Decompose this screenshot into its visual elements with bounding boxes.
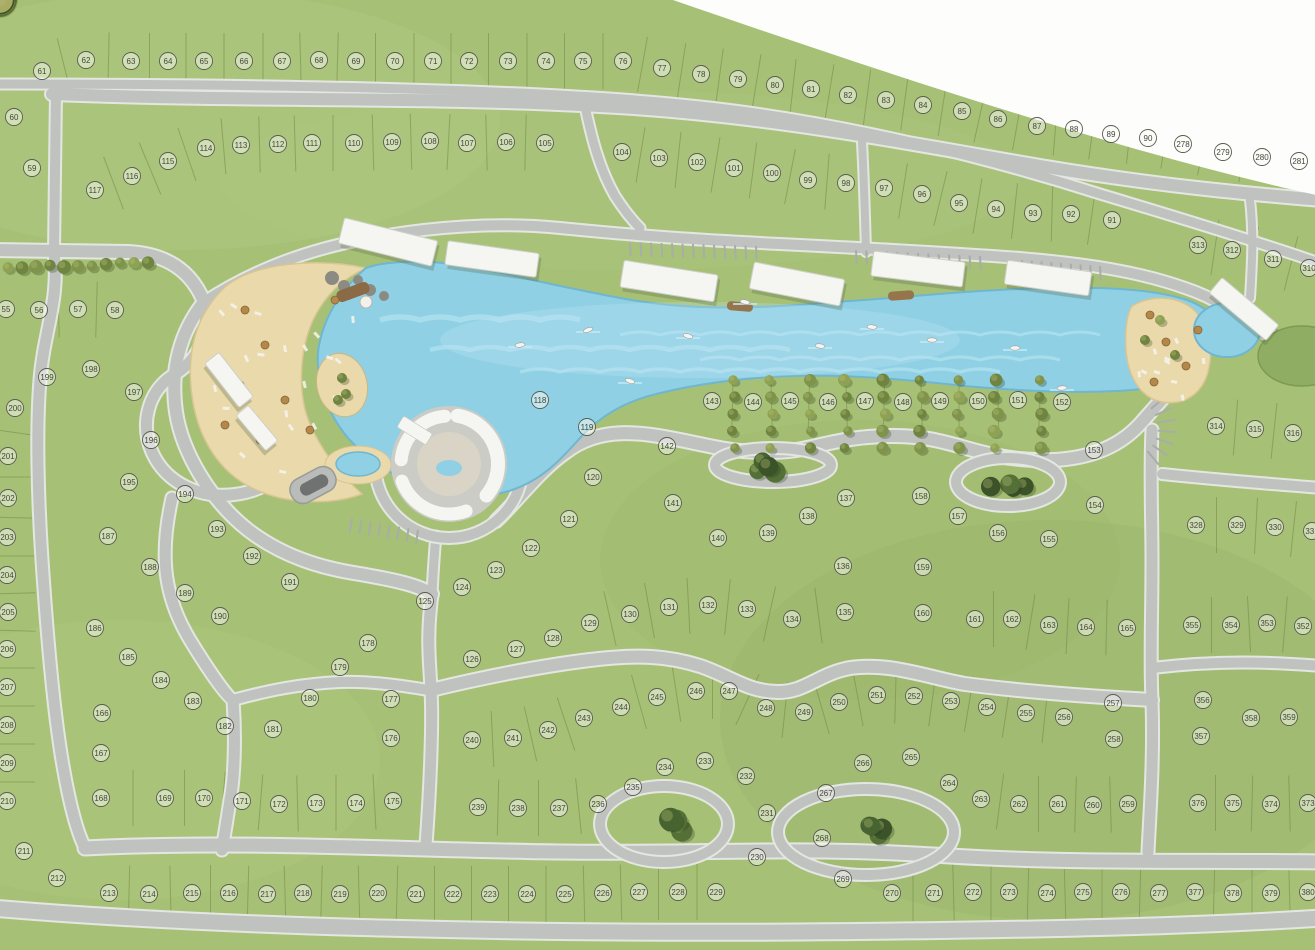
lot-marker-280: 280 (1254, 149, 1271, 166)
lot-marker-59: 59 (24, 160, 41, 177)
lot-marker-158: 158 (913, 488, 930, 505)
lot-marker-359: 359 (1281, 709, 1298, 726)
svg-text:235: 235 (626, 783, 640, 792)
lot-marker-95: 95 (951, 195, 968, 212)
svg-text:157: 157 (951, 512, 965, 521)
lot-marker-209: 209 (0, 755, 16, 772)
lot-marker-93: 93 (1025, 205, 1042, 222)
lot-marker-203: 203 (0, 529, 16, 546)
lot-marker-205: 205 (0, 604, 17, 621)
svg-text:378: 378 (1226, 889, 1240, 898)
svg-text:161: 161 (968, 615, 982, 624)
svg-text:60: 60 (10, 113, 19, 122)
lot-marker-69: 69 (348, 53, 365, 70)
lot-marker-60: 60 (6, 109, 23, 126)
lot-marker-234: 234 (657, 759, 674, 776)
lot-marker-275: 275 (1075, 884, 1092, 901)
svg-text:201: 201 (1, 452, 15, 461)
lot-marker-197: 197 (126, 384, 143, 401)
svg-text:171: 171 (235, 797, 249, 806)
lot-marker-252: 252 (906, 688, 923, 705)
svg-text:173: 173 (309, 799, 323, 808)
svg-text:240: 240 (465, 736, 479, 745)
svg-text:202: 202 (1, 494, 15, 503)
lot-marker-236: 236 (590, 796, 607, 813)
lot-marker-235: 235 (625, 779, 642, 796)
lot-marker-71: 71 (425, 53, 442, 70)
svg-text:153: 153 (1087, 446, 1101, 455)
svg-text:193: 193 (210, 525, 224, 534)
svg-text:195: 195 (122, 478, 136, 487)
svg-text:126: 126 (465, 655, 479, 664)
lot-marker-123: 123 (488, 562, 505, 579)
svg-text:71: 71 (429, 57, 438, 66)
lot-marker-65: 65 (196, 53, 213, 70)
svg-text:56: 56 (35, 306, 44, 315)
lot-marker-242: 242 (540, 722, 557, 739)
lot-marker-129: 129 (582, 615, 599, 632)
svg-text:220: 220 (371, 889, 385, 898)
svg-text:258: 258 (1107, 735, 1121, 744)
svg-text:273: 273 (1002, 888, 1016, 897)
svg-text:104: 104 (615, 148, 629, 157)
lot-marker-174: 174 (348, 795, 365, 812)
lot-marker-204: 204 (0, 567, 16, 584)
svg-text:243: 243 (577, 714, 591, 723)
lot-marker-178: 178 (360, 635, 377, 652)
svg-text:245: 245 (650, 693, 664, 702)
svg-text:170: 170 (197, 794, 211, 803)
lot-marker-80: 80 (767, 77, 784, 94)
svg-text:281: 281 (1292, 157, 1306, 166)
lot-marker-104: 104 (614, 144, 631, 161)
lot-marker-110: 110 (346, 135, 363, 152)
svg-text:87: 87 (1033, 122, 1042, 131)
lot-marker-64: 64 (160, 53, 177, 70)
svg-text:123: 123 (489, 566, 503, 575)
svg-text:229: 229 (709, 888, 723, 897)
svg-text:190: 190 (213, 612, 227, 621)
lot-marker-100: 100 (764, 165, 781, 182)
lot-marker-135: 135 (837, 604, 854, 621)
lot-marker-194: 194 (177, 486, 194, 503)
lot-marker-357: 357 (1193, 728, 1210, 745)
svg-text:223: 223 (483, 890, 497, 899)
svg-text:184: 184 (154, 676, 168, 685)
lot-marker-263: 263 (973, 791, 990, 808)
svg-text:269: 269 (836, 875, 850, 884)
lot-marker-180: 180 (302, 690, 319, 707)
svg-text:99: 99 (804, 176, 813, 185)
lot-marker-92: 92 (1063, 206, 1080, 223)
lot-marker-352: 352 (1295, 618, 1312, 635)
svg-text:329: 329 (1230, 521, 1244, 530)
lot-marker-254: 254 (979, 699, 996, 716)
lot-marker-105: 105 (537, 135, 554, 152)
lot-marker-75: 75 (575, 53, 592, 70)
lot-marker-279: 279 (1215, 144, 1232, 161)
svg-text:211: 211 (18, 847, 31, 856)
svg-text:102: 102 (690, 158, 704, 167)
svg-text:63: 63 (127, 57, 136, 66)
lot-marker-134: 134 (784, 611, 801, 628)
svg-text:89: 89 (1107, 130, 1116, 139)
svg-text:216: 216 (222, 889, 236, 898)
lot-marker-176: 176 (383, 730, 400, 747)
lot-marker-278: 278 (1175, 136, 1192, 153)
svg-text:230: 230 (750, 853, 764, 862)
lot-marker-143: 143 (704, 393, 721, 410)
lot-marker-148: 148 (895, 394, 912, 411)
svg-text:88: 88 (1070, 125, 1079, 134)
svg-text:115: 115 (162, 157, 175, 166)
svg-text:121: 121 (562, 515, 576, 524)
lot-marker-239: 239 (470, 799, 487, 816)
svg-text:180: 180 (303, 694, 317, 703)
lot-marker-264: 264 (941, 775, 958, 792)
svg-text:277: 277 (1152, 889, 1166, 898)
svg-text:183: 183 (186, 697, 200, 706)
lot-marker-121: 121 (561, 511, 578, 528)
lot-marker-237: 237 (551, 800, 568, 817)
svg-text:178: 178 (361, 639, 375, 648)
svg-text:249: 249 (797, 708, 811, 717)
svg-text:144: 144 (746, 398, 760, 407)
svg-text:187: 187 (101, 532, 115, 541)
lot-marker-152: 152 (1054, 394, 1071, 411)
svg-text:197: 197 (127, 388, 141, 397)
lot-marker-86: 86 (990, 111, 1007, 128)
svg-text:262: 262 (1012, 800, 1026, 809)
lot-marker-210: 210 (0, 793, 16, 810)
svg-text:189: 189 (178, 589, 192, 598)
lot-marker-186: 186 (87, 620, 104, 637)
svg-text:65: 65 (200, 57, 209, 66)
lot-marker-268: 268 (814, 830, 831, 847)
svg-text:188: 188 (143, 563, 157, 572)
lot-marker-172: 172 (271, 796, 288, 813)
lot-marker-136: 136 (835, 558, 852, 575)
svg-text:271: 271 (927, 889, 941, 898)
svg-text:375: 375 (1226, 799, 1240, 808)
svg-text:156: 156 (991, 529, 1005, 538)
lot-marker-247: 247 (721, 683, 738, 700)
lot-marker-73: 73 (500, 53, 517, 70)
lot-marker-379: 379 (1263, 885, 1280, 902)
lot-marker-167: 167 (93, 745, 110, 762)
lot-marker-155: 155 (1041, 531, 1058, 548)
svg-text:247: 247 (722, 687, 736, 696)
lot-marker-81: 81 (803, 81, 820, 98)
svg-text:353: 353 (1260, 619, 1274, 628)
svg-text:265: 265 (904, 753, 918, 762)
lot-marker-156: 156 (990, 525, 1007, 542)
lot-marker-260: 260 (1085, 797, 1102, 814)
svg-text:236: 236 (591, 800, 605, 809)
lot-marker-119: 119 (579, 419, 596, 436)
svg-text:241: 241 (506, 734, 520, 743)
lot-marker-207: 207 (0, 679, 16, 696)
svg-text:233: 233 (698, 757, 712, 766)
lot-marker-145: 145 (782, 393, 799, 410)
svg-text:185: 185 (121, 653, 135, 662)
svg-text:112: 112 (272, 140, 285, 149)
lot-marker-274: 274 (1039, 885, 1056, 902)
lot-marker-221: 221 (408, 886, 425, 903)
lot-marker-358: 358 (1243, 710, 1260, 727)
lot-marker-144: 144 (745, 394, 762, 411)
svg-text:100: 100 (765, 169, 779, 178)
lot-marker-76: 76 (615, 53, 632, 70)
svg-text:140: 140 (711, 534, 725, 543)
svg-text:207: 207 (0, 683, 14, 692)
lot-marker-58: 58 (107, 302, 124, 319)
lot-marker-101: 101 (726, 160, 743, 177)
svg-text:67: 67 (278, 57, 287, 66)
lot-marker-179: 179 (332, 659, 349, 676)
svg-text:118: 118 (534, 396, 547, 405)
svg-text:252: 252 (907, 692, 921, 701)
svg-text:274: 274 (1040, 889, 1054, 898)
svg-text:234: 234 (658, 763, 672, 772)
svg-text:76: 76 (619, 57, 628, 66)
svg-text:226: 226 (596, 889, 610, 898)
lot-marker-188: 188 (142, 559, 159, 576)
svg-text:96: 96 (918, 190, 927, 199)
svg-text:313: 313 (1191, 241, 1205, 250)
lot-marker-227: 227 (631, 884, 648, 901)
lot-marker-232: 232 (738, 768, 755, 785)
lot-marker-187: 187 (100, 528, 117, 545)
lot-marker-130: 130 (622, 606, 639, 623)
lot-marker-222: 222 (445, 886, 462, 903)
lot-marker-270: 270 (884, 885, 901, 902)
masterplan-map: 5556575859606162636465666768697071727374… (0, 0, 1315, 950)
svg-text:228: 228 (671, 888, 685, 897)
svg-text:90: 90 (1144, 134, 1153, 143)
lot-marker-256: 256 (1056, 709, 1073, 726)
lot-marker-213: 213 (101, 885, 118, 902)
lot-marker-233: 233 (697, 753, 714, 770)
lot-marker-315: 315 (1247, 421, 1264, 438)
lot-marker-78: 78 (693, 66, 710, 83)
lot-marker-198: 198 (83, 361, 100, 378)
svg-text:272: 272 (966, 888, 980, 897)
lot-marker-181: 181 (265, 721, 282, 738)
svg-text:179: 179 (333, 663, 347, 672)
lot-marker-111: 111 (304, 135, 321, 152)
svg-text:212: 212 (50, 874, 64, 883)
svg-text:209: 209 (0, 759, 14, 768)
svg-text:93: 93 (1029, 209, 1038, 218)
lot-marker-261: 261 (1050, 796, 1067, 813)
svg-text:169: 169 (158, 794, 172, 803)
svg-text:224: 224 (520, 890, 534, 899)
lot-marker-250: 250 (831, 694, 848, 711)
svg-text:72: 72 (465, 57, 474, 66)
svg-text:254: 254 (980, 703, 994, 712)
lot-marker-116: 116 (124, 168, 141, 185)
lot-marker-267: 267 (818, 785, 835, 802)
masterplan-canvas: 5556575859606162636465666768697071727374… (0, 0, 1315, 950)
svg-text:256: 256 (1057, 713, 1071, 722)
svg-text:279: 279 (1216, 148, 1230, 157)
svg-text:199: 199 (40, 373, 54, 382)
lot-marker-67: 67 (274, 53, 291, 70)
svg-text:134: 134 (785, 615, 799, 624)
lot-marker-249: 249 (796, 704, 813, 721)
svg-text:168: 168 (94, 794, 108, 803)
lot-marker-272: 272 (965, 884, 982, 901)
svg-text:251: 251 (870, 691, 884, 700)
svg-text:312: 312 (1225, 246, 1239, 255)
lot-marker-219: 219 (332, 886, 349, 903)
svg-text:176: 176 (384, 734, 398, 743)
lot-marker-185: 185 (120, 649, 137, 666)
lot-marker-353: 353 (1259, 615, 1276, 632)
svg-text:150: 150 (971, 397, 985, 406)
lot-marker-72: 72 (461, 53, 478, 70)
svg-text:239: 239 (471, 803, 485, 812)
svg-text:357: 357 (1194, 732, 1208, 741)
svg-text:111: 111 (306, 139, 319, 148)
lot-marker-124: 124 (454, 579, 471, 596)
lot-marker-354: 354 (1223, 617, 1240, 634)
svg-text:139: 139 (761, 529, 775, 538)
svg-text:135: 135 (838, 608, 852, 617)
lot-marker-166: 166 (94, 705, 111, 722)
lot-marker-89: 89 (1103, 126, 1120, 143)
svg-text:78: 78 (697, 70, 706, 79)
lot-marker-251: 251 (869, 687, 886, 704)
svg-text:227: 227 (632, 888, 646, 897)
lot-marker-265: 265 (903, 749, 920, 766)
lot-marker-217: 217 (259, 886, 276, 903)
svg-text:214: 214 (142, 890, 156, 899)
svg-text:250: 250 (832, 698, 846, 707)
svg-text:142: 142 (660, 442, 674, 451)
svg-text:107: 107 (460, 139, 474, 148)
lot-marker-206: 206 (0, 641, 16, 658)
svg-text:231: 231 (760, 809, 774, 818)
svg-text:328: 328 (1189, 521, 1203, 530)
lot-marker-173: 173 (308, 795, 325, 812)
svg-text:191: 191 (283, 578, 297, 587)
svg-text:263: 263 (974, 795, 988, 804)
svg-text:101: 101 (727, 164, 741, 173)
svg-text:128: 128 (546, 634, 560, 643)
lot-marker-127: 127 (508, 641, 525, 658)
svg-text:152: 152 (1055, 398, 1069, 407)
lot-marker-375: 375 (1225, 795, 1242, 812)
svg-text:113: 113 (235, 141, 248, 150)
lot-marker-373: 373 (1300, 795, 1315, 812)
lot-marker-374: 374 (1263, 796, 1280, 813)
svg-text:84: 84 (919, 101, 928, 110)
lot-marker-266: 266 (855, 755, 872, 772)
svg-text:85: 85 (958, 107, 967, 116)
lot-marker-191: 191 (282, 574, 299, 591)
svg-text:268: 268 (815, 834, 829, 843)
svg-text:92: 92 (1067, 210, 1076, 219)
lot-marker-160: 160 (915, 605, 932, 622)
svg-text:145: 145 (783, 397, 797, 406)
lot-marker-243: 243 (576, 710, 593, 727)
lot-marker-84: 84 (915, 97, 932, 114)
svg-text:177: 177 (384, 695, 398, 704)
lot-marker-120: 120 (585, 469, 602, 486)
svg-text:136: 136 (836, 562, 850, 571)
svg-text:119: 119 (581, 423, 594, 432)
svg-text:186: 186 (88, 624, 102, 633)
lot-marker-126: 126 (464, 651, 481, 668)
svg-text:148: 148 (896, 398, 910, 407)
svg-text:253: 253 (944, 697, 958, 706)
svg-text:114: 114 (200, 144, 213, 153)
svg-text:310: 310 (1302, 264, 1315, 273)
svg-text:358: 358 (1244, 714, 1258, 723)
lot-marker-79: 79 (730, 71, 747, 88)
lot-marker-316: 316 (1285, 425, 1302, 442)
svg-text:175: 175 (386, 797, 400, 806)
svg-text:133: 133 (740, 605, 754, 614)
svg-text:165: 165 (1120, 624, 1134, 633)
lot-marker-108: 108 (422, 133, 439, 150)
lot-marker-329: 329 (1229, 517, 1246, 534)
svg-text:311: 311 (1267, 255, 1280, 264)
svg-text:314: 314 (1209, 422, 1223, 431)
svg-text:86: 86 (994, 115, 1003, 124)
svg-text:58: 58 (111, 306, 120, 315)
svg-text:218: 218 (296, 889, 310, 898)
svg-text:248: 248 (759, 704, 773, 713)
svg-text:130: 130 (623, 610, 637, 619)
svg-text:222: 222 (446, 890, 460, 899)
lot-marker-171: 171 (234, 793, 251, 810)
lot-marker-231: 231 (759, 805, 776, 822)
lot-marker-70: 70 (387, 53, 404, 70)
lot-marker-99: 99 (800, 172, 817, 189)
lot-marker-128: 128 (545, 630, 562, 647)
svg-text:167: 167 (94, 749, 108, 758)
svg-text:127: 127 (509, 645, 523, 654)
svg-text:359: 359 (1282, 713, 1296, 722)
lot-marker-244: 244 (613, 699, 630, 716)
svg-text:210: 210 (0, 797, 14, 806)
svg-text:237: 237 (552, 804, 566, 813)
svg-text:194: 194 (178, 490, 192, 499)
lot-marker-57: 57 (70, 301, 87, 318)
lot-marker-330: 330 (1267, 519, 1284, 536)
svg-text:147: 147 (858, 397, 872, 406)
lot-marker-97: 97 (876, 180, 893, 197)
lot-marker-133: 133 (739, 601, 756, 618)
lot-marker-281: 281 (1291, 153, 1308, 170)
lot-marker-376: 376 (1190, 795, 1207, 812)
svg-text:204: 204 (0, 571, 14, 580)
lot-marker-201: 201 (0, 448, 17, 465)
lot-marker-356: 356 (1195, 692, 1212, 709)
lot-marker-245: 245 (649, 689, 666, 706)
svg-text:380: 380 (1301, 888, 1315, 897)
svg-text:315: 315 (1248, 425, 1262, 434)
svg-text:280: 280 (1255, 153, 1269, 162)
svg-text:61: 61 (38, 67, 47, 76)
lot-marker-98: 98 (838, 175, 855, 192)
lot-marker-115: 115 (160, 153, 177, 170)
svg-text:94: 94 (992, 205, 1001, 214)
lot-marker-138: 138 (800, 508, 817, 525)
